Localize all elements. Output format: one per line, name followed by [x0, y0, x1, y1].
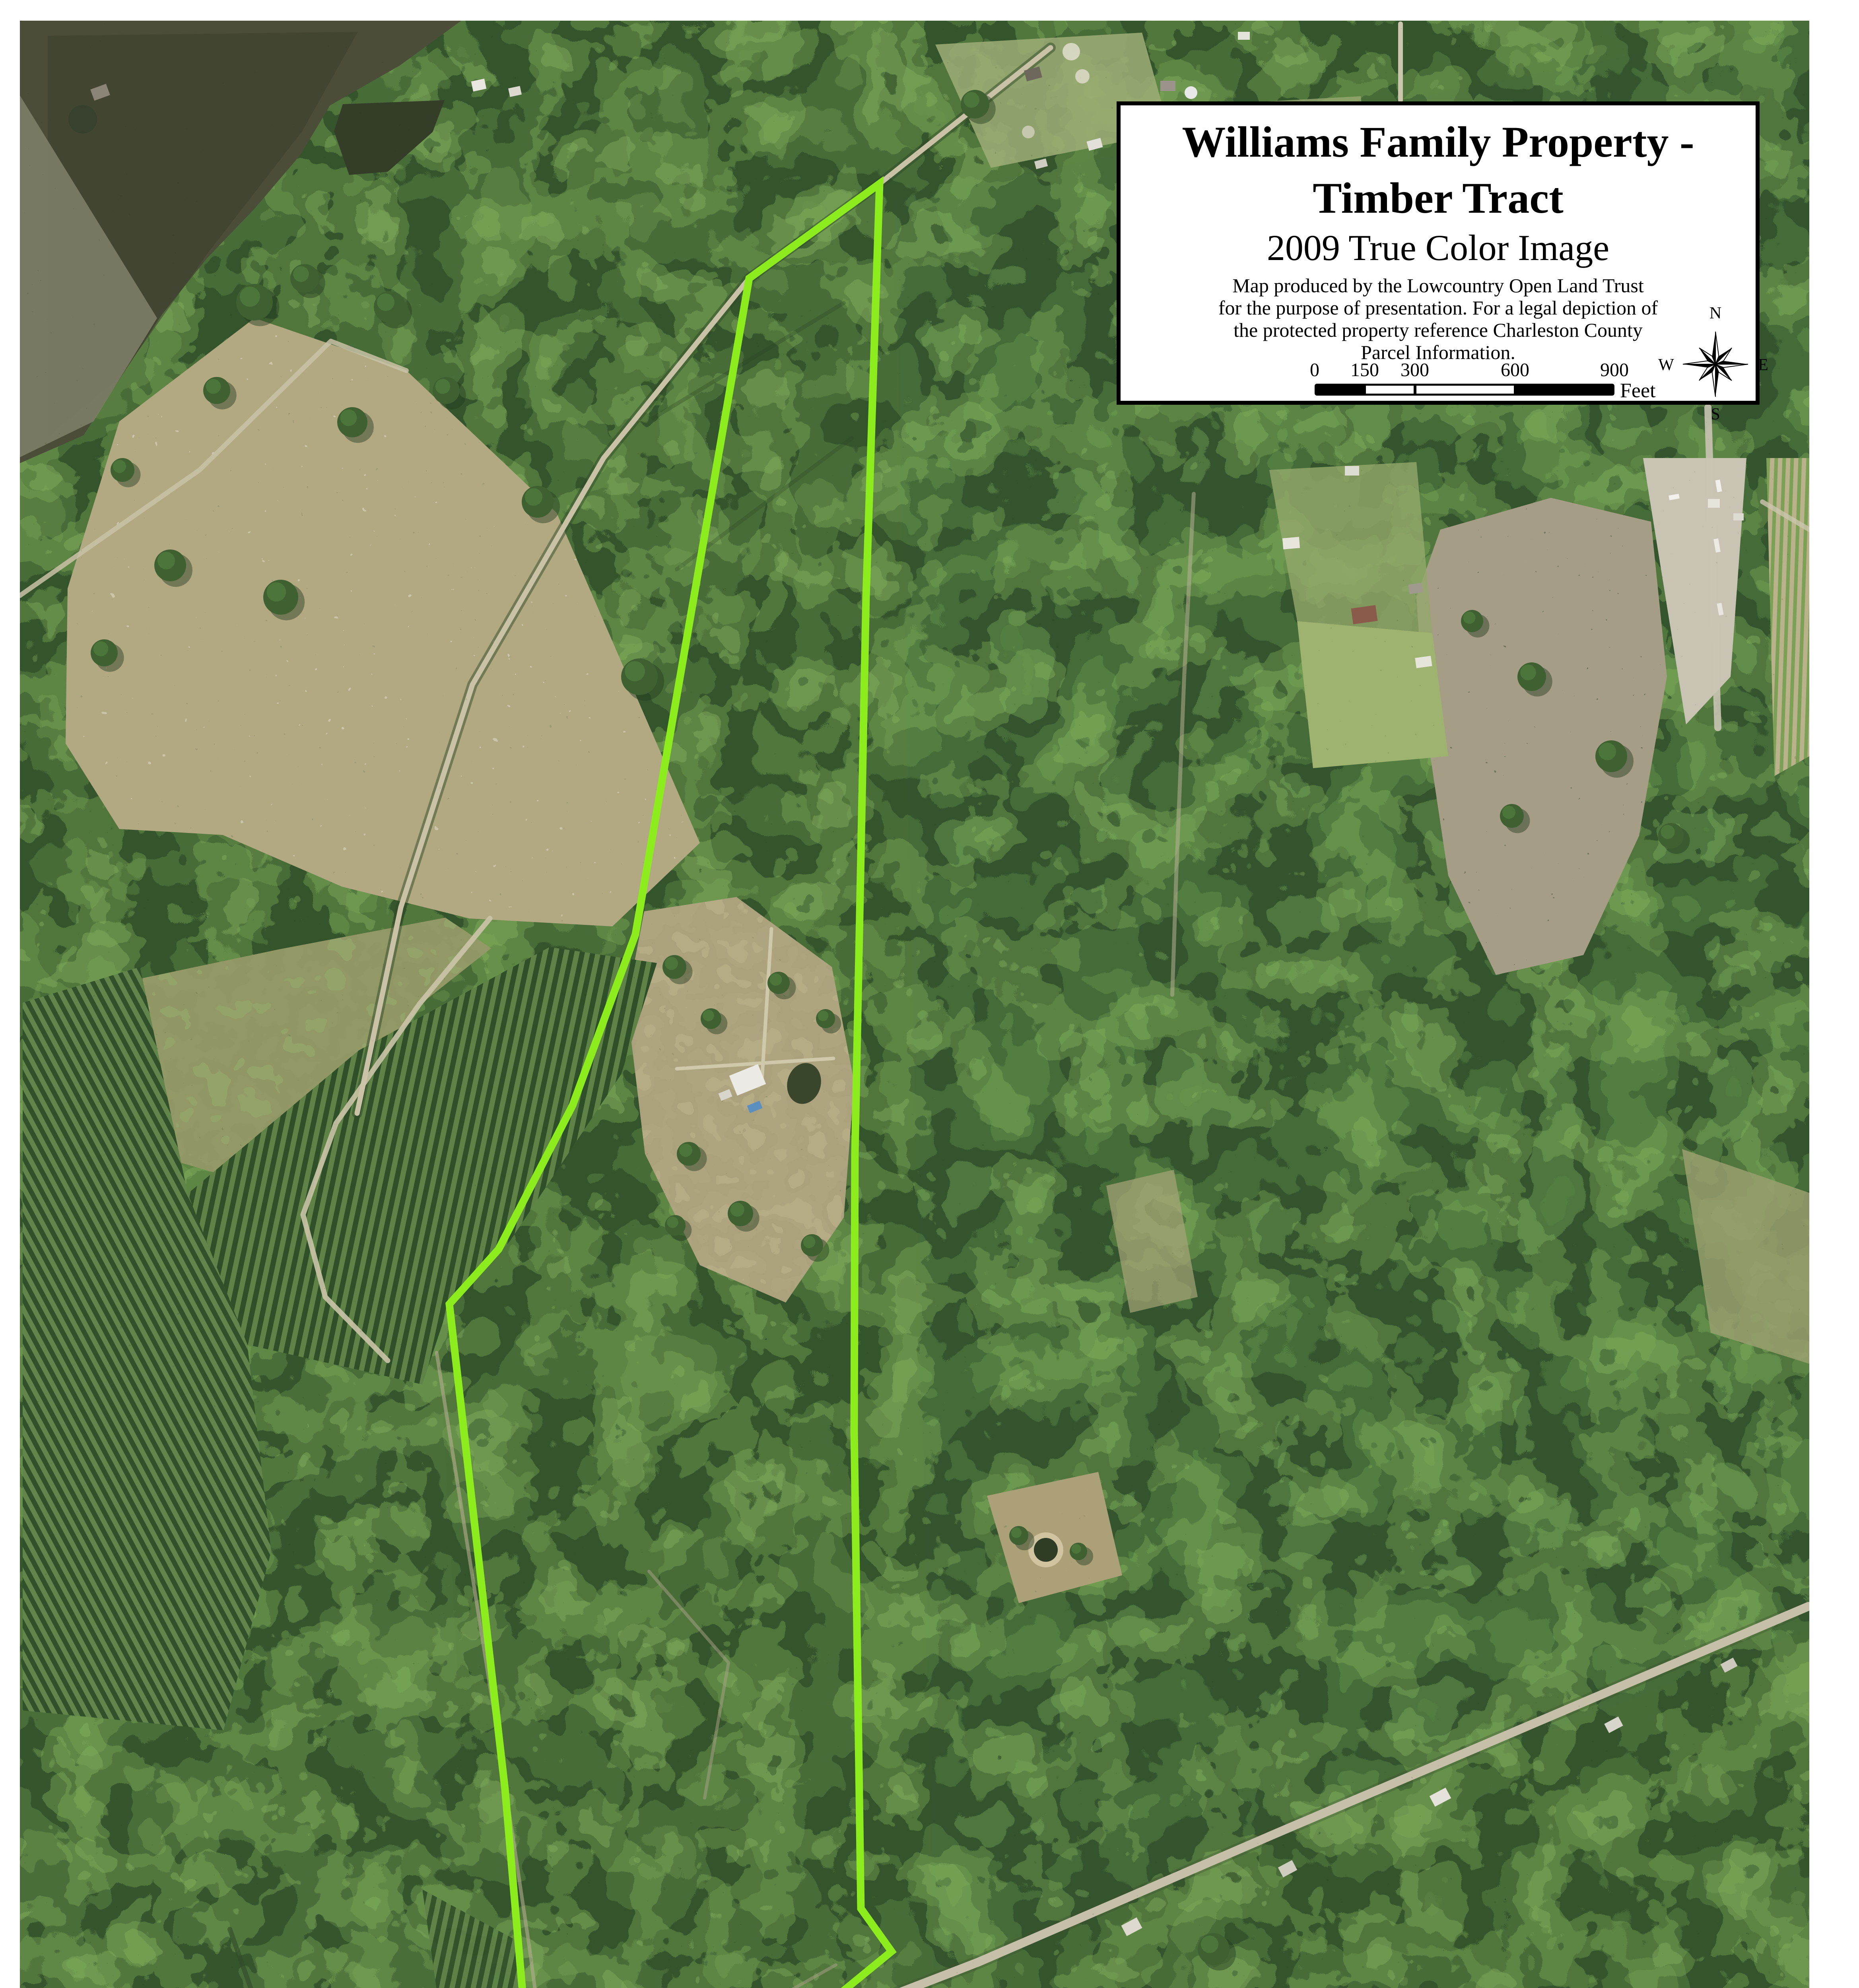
- tree-highlight: [377, 293, 394, 311]
- building: [1415, 656, 1432, 668]
- tree-highlight: [703, 1010, 714, 1021]
- tree-highlight: [667, 1217, 678, 1228]
- tree-highlight: [1071, 1544, 1081, 1553]
- building: [1160, 81, 1175, 91]
- tree-highlight: [1201, 1936, 1218, 1953]
- structures-circle: [1063, 43, 1080, 60]
- scale-tick-label: 600: [1501, 359, 1529, 381]
- tree-highlight: [963, 92, 979, 108]
- building: [1351, 605, 1378, 624]
- tree-highlight: [525, 488, 542, 506]
- tree-highlight: [1520, 664, 1536, 680]
- building: [1238, 32, 1250, 40]
- tree-highlight: [206, 379, 221, 394]
- disclaimer-line: Map produced by the Lowcountry Open Land…: [1121, 274, 1756, 297]
- tree-highlight: [157, 552, 175, 569]
- scale-tick-label: 300: [1401, 359, 1429, 381]
- tree-highlight: [818, 1011, 828, 1021]
- map-title-line1: Williams Family Property -: [1182, 118, 1694, 166]
- tree-highlight: [340, 410, 357, 426]
- structures-circle: [1022, 126, 1035, 138]
- tree-highlight: [803, 1236, 816, 1248]
- tree-highlight: [730, 1203, 744, 1217]
- title-box: Williams Family Property - Timber Tract …: [1117, 101, 1760, 405]
- tree-highlight: [625, 661, 645, 681]
- tree-highlight: [665, 957, 678, 970]
- tree-highlight: [1011, 1528, 1022, 1538]
- compass-label-w: W: [1658, 355, 1674, 375]
- scale-tick-label: 900: [1600, 359, 1629, 381]
- tree-highlight: [1502, 806, 1515, 819]
- page: { "page": {"width":4675,"height":6050,"b…: [0, 0, 1859, 1988]
- tree-highlight: [240, 287, 260, 307]
- scale-bar-segment: [1416, 386, 1514, 394]
- tree-highlight: [93, 641, 108, 656]
- tree-highlight: [679, 1144, 692, 1157]
- structures-circle: [1075, 69, 1090, 83]
- structures-circle: [1185, 86, 1197, 99]
- compass-label-e: E: [1758, 355, 1768, 375]
- compass-label-n: N: [1709, 304, 1721, 323]
- building: [1733, 513, 1744, 520]
- building: [1345, 466, 1359, 476]
- tree-highlight: [1463, 612, 1476, 624]
- tree-highlight: [1599, 743, 1616, 760]
- map-title: Williams Family Property - Timber Tract: [1121, 105, 1756, 226]
- tree-highlight: [770, 973, 782, 986]
- map-subtitle: 2009 True Color Image: [1121, 228, 1756, 268]
- scale-tick-label: 0: [1310, 359, 1319, 381]
- tree-highlight: [113, 460, 126, 473]
- building: [1282, 537, 1300, 549]
- scale-tick-label: 150: [1350, 359, 1379, 381]
- scale-bar: 0150300600900Feet: [1315, 384, 1614, 396]
- map-container: Williams Family Property - Timber Tract …: [0, 0, 1859, 1988]
- scale-unit-label: Feet: [1620, 379, 1656, 402]
- tree-highlight: [435, 379, 450, 394]
- building: [1708, 499, 1720, 508]
- tree-highlight: [293, 266, 309, 282]
- tree-highlight: [267, 582, 286, 602]
- compass-label-s: S: [1711, 405, 1720, 424]
- map-title-line2: Timber Tract: [1313, 174, 1563, 222]
- building: [1408, 583, 1423, 594]
- scale-bar-segment: [1366, 386, 1414, 394]
- tree-highlight: [1661, 825, 1674, 839]
